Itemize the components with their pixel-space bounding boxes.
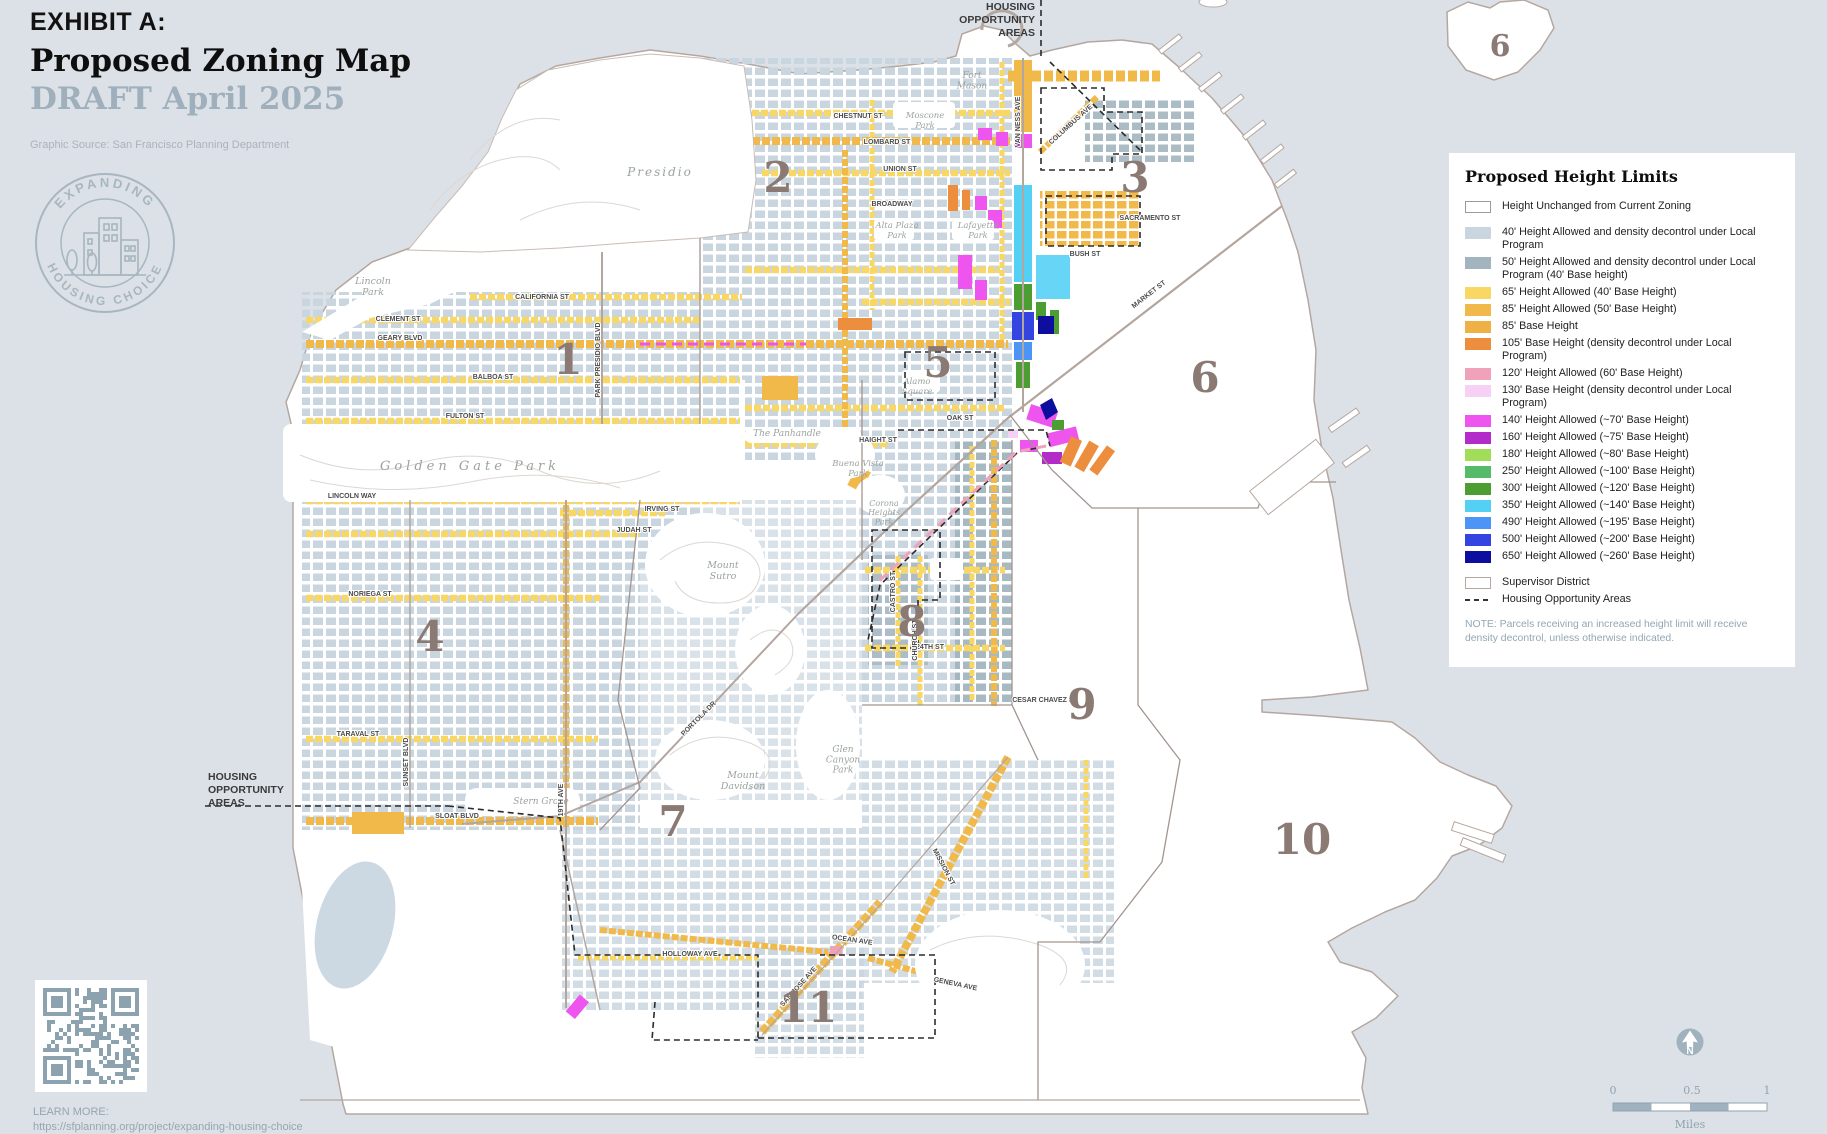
legend-item: Supervisor District bbox=[1465, 576, 1779, 589]
svg-text:NORIEGA ST: NORIEGA ST bbox=[348, 591, 392, 598]
scale-unit: Miles bbox=[1675, 1118, 1706, 1131]
svg-text:CHESTNUT ST: CHESTNUT ST bbox=[834, 113, 884, 120]
scale-bar: 0 0.5 1 Miles bbox=[1610, 1084, 1771, 1131]
svg-text:HOUSING: HOUSING bbox=[986, 1, 1035, 13]
legend-item: 40' Height Allowed and density decontrol… bbox=[1465, 226, 1779, 252]
scale-tick-05: 0.5 bbox=[1683, 1084, 1701, 1097]
legend-swatch bbox=[1465, 338, 1491, 350]
legend-swatch bbox=[1465, 201, 1491, 213]
svg-text:7: 7 bbox=[658, 797, 687, 846]
title-block: EXHIBIT A: Proposed Zoning Map DRAFT Apr… bbox=[30, 8, 411, 151]
legend-swatch bbox=[1465, 227, 1491, 239]
buildings-icon bbox=[64, 218, 146, 275]
legend-swatch bbox=[1465, 287, 1491, 299]
svg-text:2: 2 bbox=[763, 153, 792, 202]
svg-text:IRVING ST: IRVING ST bbox=[645, 506, 681, 513]
legend-label: Supervisor District bbox=[1502, 576, 1590, 589]
legend-label: 50' Height Allowed and density decontrol… bbox=[1502, 256, 1779, 282]
draft-subtitle: DRAFT April 2025 bbox=[30, 81, 411, 117]
legend-label: 65' Height Allowed (40' Base Height) bbox=[1502, 286, 1677, 299]
svg-text:SACRAMENTO ST: SACRAMENTO ST bbox=[1120, 215, 1182, 222]
svg-text:BUSH ST: BUSH ST bbox=[1070, 251, 1101, 258]
legend-swatch bbox=[1465, 321, 1491, 333]
svg-text:LOMBARD ST: LOMBARD ST bbox=[864, 139, 911, 146]
legend-item: 85' Base Height bbox=[1465, 320, 1779, 333]
logo-bottom-text: HOUSING CHOICE bbox=[44, 261, 165, 308]
svg-text:FULTON ST: FULTON ST bbox=[446, 413, 485, 420]
legend-item: 650' Height Allowed (~260' Base Height) bbox=[1465, 550, 1779, 563]
svg-text:HOUSING: HOUSING bbox=[208, 771, 257, 783]
logo-top-text: EXPANDING bbox=[51, 175, 158, 211]
legend-panel: Proposed Height Limits Height Unchanged … bbox=[1449, 153, 1795, 667]
svg-text:BALBOA ST: BALBOA ST bbox=[473, 374, 514, 381]
svg-text:OPPORTUNITY: OPPORTUNITY bbox=[208, 784, 284, 796]
svg-text:HAIGHT ST: HAIGHT ST bbox=[859, 437, 897, 444]
exhibit-label: EXHIBIT A: bbox=[30, 8, 411, 37]
legend-label: 650' Height Allowed (~260' Base Height) bbox=[1502, 550, 1695, 563]
legend-label: 120' Height Allowed (60' Base Height) bbox=[1502, 367, 1683, 380]
legend-item: Height Unchanged from Current Zoning bbox=[1465, 200, 1779, 213]
legend-swatch bbox=[1465, 385, 1491, 397]
legend-item: 65' Height Allowed (40' Base Height) bbox=[1465, 286, 1779, 299]
svg-text:MountDavidson: MountDavidson bbox=[720, 770, 765, 792]
qr-code bbox=[35, 980, 147, 1092]
legend-label: Height Unchanged from Current Zoning bbox=[1502, 200, 1691, 213]
svg-text:VAN NESS AVE: VAN NESS AVE bbox=[1015, 96, 1022, 147]
svg-text:LINCOLN WAY: LINCOLN WAY bbox=[328, 493, 377, 500]
legend-label: 300' Height Allowed (~120' Base Height) bbox=[1502, 482, 1695, 495]
legend-item: Housing Opportunity Areas bbox=[1465, 593, 1779, 606]
svg-text:Presidio: Presidio bbox=[626, 165, 693, 179]
svg-text:MountSutro: MountSutro bbox=[706, 560, 739, 582]
legend-item: 140' Height Allowed (~70' Base Height) bbox=[1465, 414, 1779, 427]
svg-text:19TH AVE: 19TH AVE bbox=[558, 783, 565, 816]
legend-swatch bbox=[1465, 449, 1491, 461]
legend-item: 180' Height Allowed (~80' Base Height) bbox=[1465, 448, 1779, 461]
legend-label: 250' Height Allowed (~100' Base Height) bbox=[1502, 465, 1695, 478]
north-arrow-icon: N bbox=[1677, 1029, 1704, 1058]
legend-swatch bbox=[1465, 517, 1491, 529]
svg-text:SUNSET BLVD: SUNSET BLVD bbox=[403, 738, 410, 787]
legend-swatch bbox=[1465, 304, 1491, 316]
svg-text:HOLLOWAY AVE: HOLLOWAY AVE bbox=[662, 951, 718, 958]
legend-item: 85' Height Allowed (50' Base Height) bbox=[1465, 303, 1779, 316]
svg-text:BROADWAY: BROADWAY bbox=[872, 201, 913, 208]
legend-swatch bbox=[1465, 577, 1491, 589]
legend-swatch bbox=[1465, 368, 1491, 380]
legend-label: 500' Height Allowed (~200' Base Height) bbox=[1502, 533, 1695, 546]
legend-item: 120' Height Allowed (60' Base Height) bbox=[1465, 367, 1779, 380]
legend-item: 350' Height Allowed (~140' Base Height) bbox=[1465, 499, 1779, 512]
legend-label: 130' Base Height (density decontrol unde… bbox=[1502, 384, 1779, 410]
scale-tick-1: 1 bbox=[1764, 1084, 1771, 1097]
legend-swatch bbox=[1465, 534, 1491, 546]
legend-label: 85' Base Height bbox=[1502, 320, 1578, 333]
learn-more-block: LEARN MORE: https://sfplanning.org/proje… bbox=[33, 1105, 303, 1134]
legend-swatch bbox=[1465, 599, 1491, 601]
legend-swatch bbox=[1465, 466, 1491, 478]
north-arrow-letter: N bbox=[1686, 1046, 1693, 1057]
legend-item: 50' Height Allowed and density decontrol… bbox=[1465, 256, 1779, 282]
learn-more-label: LEARN MORE: bbox=[33, 1105, 303, 1120]
legend-label: 160' Height Allowed (~75' Base Height) bbox=[1502, 431, 1689, 444]
svg-text:EXPANDING: EXPANDING bbox=[51, 175, 158, 211]
svg-text:CALIFORNIA ST: CALIFORNIA ST bbox=[515, 294, 570, 301]
svg-text:5: 5 bbox=[923, 338, 952, 387]
legend-label: 85' Height Allowed (50' Base Height) bbox=[1502, 303, 1677, 316]
svg-text:8: 8 bbox=[897, 597, 926, 646]
zoning-map-page: EXPANDING HOUSING CHOICE bbox=[0, 0, 1827, 1134]
svg-text:Golden Gate Park: Golden Gate Park bbox=[380, 459, 560, 474]
graphic-source: Graphic Source: San Francisco Planning D… bbox=[30, 139, 411, 151]
svg-text:AREAS: AREAS bbox=[998, 27, 1035, 39]
svg-text:The Panhandle: The Panhandle bbox=[753, 429, 821, 439]
legend-label: Housing Opportunity Areas bbox=[1502, 593, 1631, 606]
svg-text:CLEMENT ST: CLEMENT ST bbox=[376, 316, 421, 323]
legend-item: 300' Height Allowed (~120' Base Height) bbox=[1465, 482, 1779, 495]
svg-text:AREAS: AREAS bbox=[208, 797, 245, 809]
legend-swatch bbox=[1465, 551, 1491, 563]
svg-text:6: 6 bbox=[1490, 29, 1511, 64]
legend-label: 140' Height Allowed (~70' Base Height) bbox=[1502, 414, 1689, 427]
learn-more-url: https://sfplanning.org/project/expanding… bbox=[33, 1120, 303, 1134]
legend-label: 180' Height Allowed (~80' Base Height) bbox=[1502, 448, 1689, 461]
svg-text:10: 10 bbox=[1273, 815, 1331, 864]
svg-text:OPPORTUNITY: OPPORTUNITY bbox=[959, 14, 1035, 26]
legend-item: 160' Height Allowed (~75' Base Height) bbox=[1465, 431, 1779, 444]
legend-swatch bbox=[1465, 257, 1491, 269]
legend-label: 105' Base Height (density decontrol unde… bbox=[1502, 337, 1779, 363]
svg-text:9: 9 bbox=[1067, 680, 1096, 729]
legend-label: 350' Height Allowed (~140' Base Height) bbox=[1502, 499, 1695, 512]
svg-text:TARAVAL ST: TARAVAL ST bbox=[337, 731, 380, 738]
legend-label: 490' Height Allowed (~195' Base Height) bbox=[1502, 516, 1695, 529]
legend-item: 500' Height Allowed (~200' Base Height) bbox=[1465, 533, 1779, 546]
expanding-housing-choice-logo: EXPANDING HOUSING CHOICE bbox=[36, 174, 174, 312]
legend-title: Proposed Height Limits bbox=[1465, 167, 1779, 186]
page-title: Proposed Zoning Map bbox=[30, 43, 411, 79]
svg-text:6: 6 bbox=[1190, 353, 1219, 402]
legend-note: NOTE: Parcels receiving an increased hei… bbox=[1465, 618, 1765, 646]
scale-tick-0: 0 bbox=[1610, 1084, 1617, 1097]
legend-item: 105' Base Height (density decontrol unde… bbox=[1465, 337, 1779, 363]
svg-text:1: 1 bbox=[553, 335, 582, 384]
svg-text:CASTRO ST: CASTRO ST bbox=[890, 571, 897, 612]
legend-items: Height Unchanged from Current Zoning40' … bbox=[1465, 200, 1779, 606]
svg-text:JUDAH ST: JUDAH ST bbox=[616, 527, 652, 534]
svg-text:4: 4 bbox=[415, 612, 444, 661]
svg-text:11: 11 bbox=[779, 983, 837, 1032]
legend-label: 40' Height Allowed and density decontrol… bbox=[1502, 226, 1779, 252]
legend-swatch bbox=[1465, 500, 1491, 512]
svg-text:UNION ST: UNION ST bbox=[883, 166, 917, 173]
svg-text:GEARY BLVD: GEARY BLVD bbox=[378, 335, 423, 342]
legend-item: 490' Height Allowed (~195' Base Height) bbox=[1465, 516, 1779, 529]
legend-swatch bbox=[1465, 432, 1491, 444]
svg-text:3: 3 bbox=[1120, 153, 1149, 202]
legend-item: 250' Height Allowed (~100' Base Height) bbox=[1465, 465, 1779, 478]
svg-text:HOUSING CHOICE: HOUSING CHOICE bbox=[44, 261, 165, 308]
svg-text:SLOAT BLVD: SLOAT BLVD bbox=[435, 813, 479, 820]
legend-swatch bbox=[1465, 415, 1491, 427]
legend-swatch bbox=[1465, 483, 1491, 495]
svg-text:OAK ST: OAK ST bbox=[947, 415, 974, 422]
svg-text:PARK PRESIDIO BLVD: PARK PRESIDIO BLVD bbox=[595, 322, 602, 397]
legend-item: 130' Base Height (density decontrol unde… bbox=[1465, 384, 1779, 410]
